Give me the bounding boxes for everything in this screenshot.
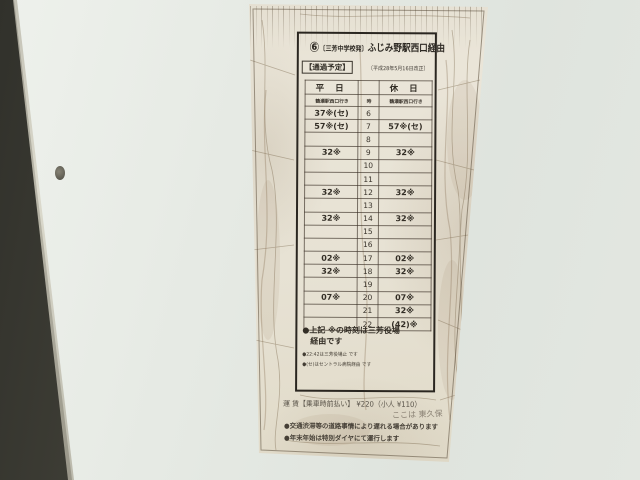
holiday-header: 休 日 bbox=[379, 81, 432, 95]
handwritten-note: ここは 東久保 bbox=[392, 408, 443, 421]
holiday-minutes bbox=[378, 225, 431, 238]
timetable-row: 32※932※ bbox=[305, 146, 432, 160]
timetable-row: 37※(セ)6 bbox=[305, 106, 432, 120]
hour-cell: 6 bbox=[358, 106, 379, 119]
timetable-table: 平 日 休 日 鶴瀬駅西口行き 時 鶴瀬駅西口行き 37※(セ)657※(セ)7… bbox=[303, 80, 432, 332]
destination-header-row: 鶴瀬駅西口行き 時 鶴瀬駅西口行き bbox=[305, 94, 432, 107]
frame-notes: ●上記 ※の時刻は三芳役場 経由です ●22:42は三芳役場止 です ●(セ)は… bbox=[302, 326, 432, 368]
holiday-minutes bbox=[379, 173, 432, 186]
weekday-destination: 鶴瀬駅西口行き bbox=[306, 94, 356, 106]
timetable-frame: ⑥〔三芳中学校発〕ふじみ野駅西口経由 【通過予定】 〔平成28年5月16日改正〕… bbox=[295, 32, 437, 393]
timetable-row: 07※2007※ bbox=[304, 291, 431, 305]
holiday-minutes: 32※ bbox=[378, 265, 431, 278]
timetable-row: 10 bbox=[305, 159, 432, 173]
hour-cell: 20 bbox=[357, 291, 378, 304]
timetable-row: 57※(セ)757※(セ) bbox=[305, 119, 432, 133]
hour-cell: 8 bbox=[358, 133, 379, 146]
holiday-minutes bbox=[379, 107, 432, 120]
timetable-row: 2132※ bbox=[304, 304, 431, 318]
timetable-row: 02※1702※ bbox=[304, 251, 431, 265]
hour-cell: 15 bbox=[357, 225, 378, 238]
note-small-line2: ●(セ)はセントラル病院経由 です bbox=[302, 360, 422, 368]
holiday-minutes bbox=[378, 199, 431, 212]
weekday-minutes bbox=[305, 159, 358, 172]
hour-header: 時 bbox=[359, 95, 379, 107]
holiday-minutes bbox=[379, 159, 432, 172]
route-number-badge: ⑥ bbox=[309, 40, 319, 56]
route-title-main: ふじみ野駅西口経由 bbox=[368, 43, 445, 54]
rivet-bolt bbox=[55, 166, 65, 180]
hour-cell: 10 bbox=[358, 159, 379, 172]
weekday-minutes bbox=[304, 225, 357, 238]
timetable-body: 37※(セ)657※(セ)757※(セ)832※932※101132※1232※… bbox=[304, 106, 432, 331]
weekday-minutes bbox=[304, 238, 357, 251]
weekday-minutes bbox=[305, 172, 358, 185]
hour-cell: 11 bbox=[358, 172, 379, 185]
weekday-minutes: 07※ bbox=[304, 291, 357, 304]
route-title-bracket: 〔三芳中学校発〕 bbox=[319, 45, 367, 53]
weekday-minutes bbox=[305, 198, 358, 211]
subheader-row: 【通過予定】 〔平成28年5月16日改正〕 bbox=[302, 61, 432, 75]
bottom-note-newyear: ●年末年始は特別ダイヤにて運行します bbox=[284, 432, 399, 443]
hour-cell: 9 bbox=[358, 146, 379, 159]
holiday-minutes: 07※ bbox=[378, 291, 431, 304]
weekday-minutes: 57※(セ) bbox=[305, 119, 358, 132]
holiday-destination: 鶴瀬駅西口行き bbox=[380, 95, 430, 107]
holiday-minutes: 02※ bbox=[378, 252, 431, 265]
photo-scene: ⑥〔三芳中学校発〕ふじみ野駅西口経由 【通過予定】 〔平成28年5月16日改正〕… bbox=[0, 0, 640, 480]
weekday-header: 平 日 bbox=[305, 80, 358, 94]
weekday-minutes: 32※ bbox=[304, 212, 357, 225]
weekday-minutes: 32※ bbox=[304, 264, 357, 277]
timetable-row: 15 bbox=[304, 225, 431, 239]
hour-cell: 7 bbox=[358, 120, 379, 133]
weekday-minutes bbox=[304, 278, 357, 291]
timetable-row: 32※1832※ bbox=[304, 264, 431, 278]
weekday-minutes: 32※ bbox=[305, 185, 358, 198]
timetable-row: 19 bbox=[304, 278, 431, 292]
hour-cell: 16 bbox=[357, 238, 378, 251]
holiday-minutes bbox=[379, 133, 432, 146]
hour-cell: 14 bbox=[357, 212, 378, 225]
timetable-row: 16 bbox=[304, 238, 431, 252]
hour-cell: 18 bbox=[357, 265, 378, 278]
timetable-row: 11 bbox=[305, 172, 432, 186]
route-title: ⑥〔三芳中学校発〕ふじみ野駅西口経由 bbox=[309, 39, 424, 57]
fare-line: 運 賃【乗車時前払い】 ¥220（小人 ¥110） bbox=[283, 398, 428, 410]
holiday-minutes: 32※ bbox=[379, 186, 432, 199]
hour-cell: 21 bbox=[357, 304, 378, 317]
hour-cell: 17 bbox=[357, 252, 378, 265]
note-small-line1: ●22:42は三芳役場止 です bbox=[302, 350, 422, 358]
timetable-paper: ⑥〔三芳中学校発〕ふじみ野駅西口経由 【通過予定】 〔平成28年5月16日改正〕… bbox=[0, 0, 640, 480]
note-main-line2: 経由です bbox=[302, 336, 432, 347]
timetable-row: 13 bbox=[305, 198, 432, 212]
hour-cell: 12 bbox=[358, 186, 379, 199]
bottom-note-traffic: ●交通渋滞等の道路事情により遅れる場合があります bbox=[284, 420, 438, 431]
weekday-minutes: 02※ bbox=[304, 251, 357, 264]
hour-cell: 13 bbox=[358, 199, 379, 212]
holiday-minutes bbox=[378, 278, 431, 291]
timetable-row: 32※1232※ bbox=[305, 185, 432, 199]
day-header-row: 平 日 休 日 bbox=[305, 80, 432, 95]
hour-header-spacer bbox=[358, 80, 379, 94]
revision-date: 〔平成28年5月16日改正〕 bbox=[368, 64, 428, 72]
weekday-minutes: 32※ bbox=[305, 146, 358, 159]
notice-label: 【通過予定】 bbox=[302, 61, 353, 74]
holiday-minutes: 32※ bbox=[379, 146, 432, 159]
holiday-minutes bbox=[378, 238, 431, 251]
holiday-minutes: 57※(セ) bbox=[379, 120, 432, 133]
hour-cell: 19 bbox=[357, 278, 378, 291]
holiday-minutes: 32※ bbox=[378, 212, 431, 225]
note-main-line1: ●上記 ※の時刻は三芳役場 bbox=[302, 326, 432, 337]
weekday-minutes bbox=[304, 304, 357, 317]
holiday-minutes: 32※ bbox=[378, 304, 431, 317]
weekday-minutes: 37※(セ) bbox=[305, 106, 358, 119]
weekday-minutes bbox=[305, 133, 358, 146]
timetable-row: 8 bbox=[305, 133, 432, 147]
timetable-row: 32※1432※ bbox=[304, 212, 431, 226]
